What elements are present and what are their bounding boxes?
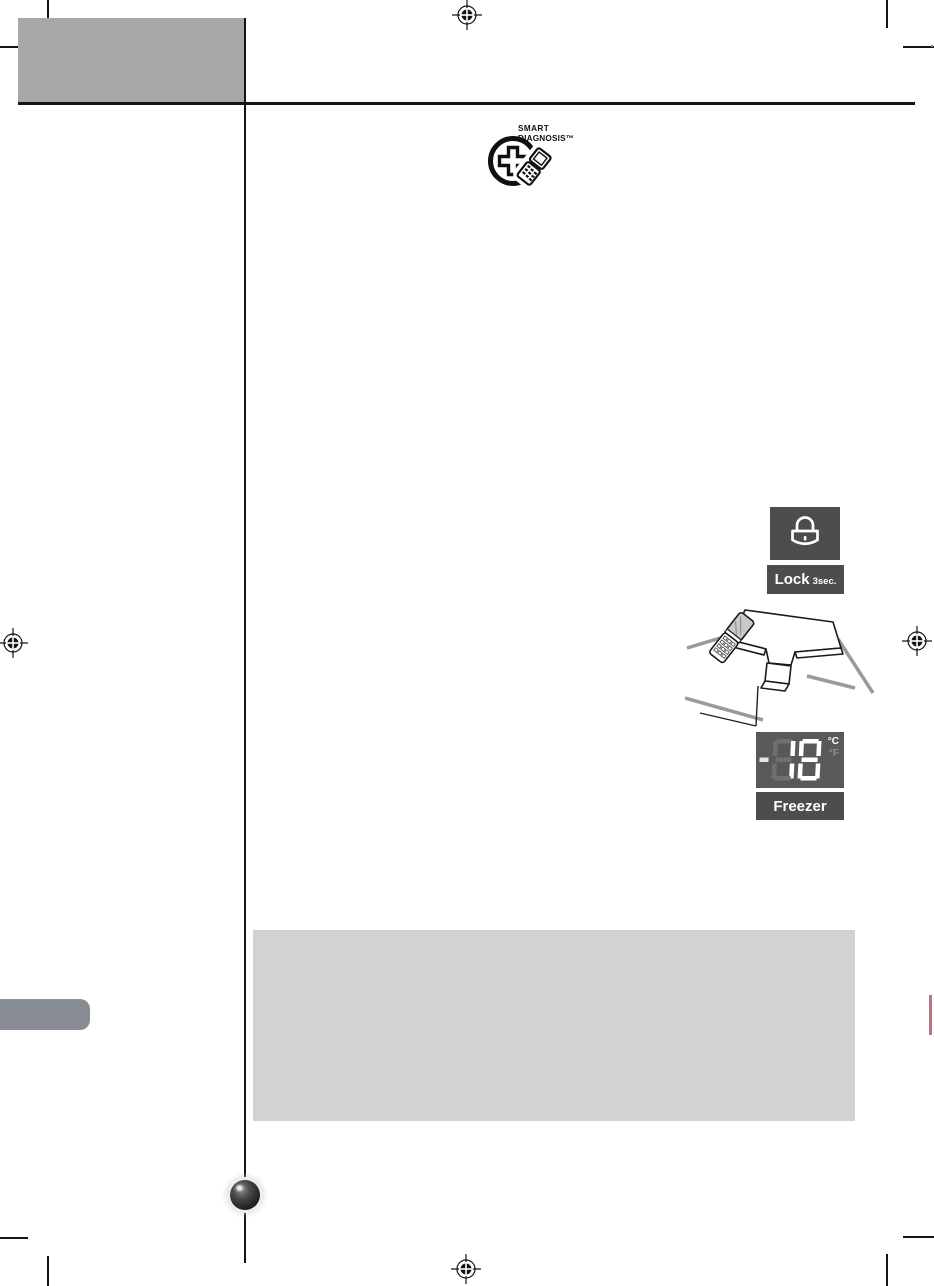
lock-hold-duration-label: 3sec. <box>813 576 837 587</box>
registration-mark-icon <box>451 1254 481 1284</box>
fahrenheit-unit-label: °F <box>829 748 839 759</box>
lock-label: Lock <box>775 571 810 588</box>
crop-mark-bottom-right-vertical <box>886 1254 888 1286</box>
registration-mark-icon <box>452 0 482 30</box>
smart-diagnosis-label-line2: DIAGNOSIS™ <box>518 134 574 143</box>
crop-mark-red-dot <box>931 45 933 47</box>
crop-mark-bottom-right-horizontal <box>903 1236 934 1238</box>
smart-diagnosis-icon: SMART DIAGNOSIS™ <box>483 118 579 194</box>
freezer-button-graphic: Freezer <box>756 792 844 820</box>
freezer-label: Freezer <box>773 798 826 815</box>
content-divider-line <box>244 18 246 1263</box>
manual-page: SMART DIAGNOSIS™ Lock 3sec. <box>0 0 934 1286</box>
celsius-unit-label: °C <box>828 736 839 747</box>
crop-mark-bottom-left-horizontal <box>0 1237 28 1239</box>
phone-to-display-illustration <box>685 598 934 733</box>
crop-mark-top-right-vertical <box>886 0 888 28</box>
lock-icon <box>784 511 826 557</box>
edge-red-mark <box>929 995 932 1035</box>
crop-mark-top-right-horizontal <box>903 46 934 48</box>
smart-diagnosis-label-line1: SMART <box>518 124 549 133</box>
side-tab <box>0 999 90 1030</box>
lock-button-graphic <box>770 507 840 560</box>
flip-phone-icon <box>514 145 554 188</box>
crop-mark-bottom-left-vertical <box>47 1256 49 1286</box>
section-header-block <box>18 18 245 104</box>
note-box <box>253 930 855 1121</box>
freezer-temperature-display: -18 <box>756 732 844 788</box>
page-marker-sphere-icon <box>230 1180 260 1210</box>
header-rule <box>18 102 915 105</box>
registration-mark-icon <box>0 628 28 658</box>
lock-label-bar: Lock 3sec. <box>767 565 844 594</box>
